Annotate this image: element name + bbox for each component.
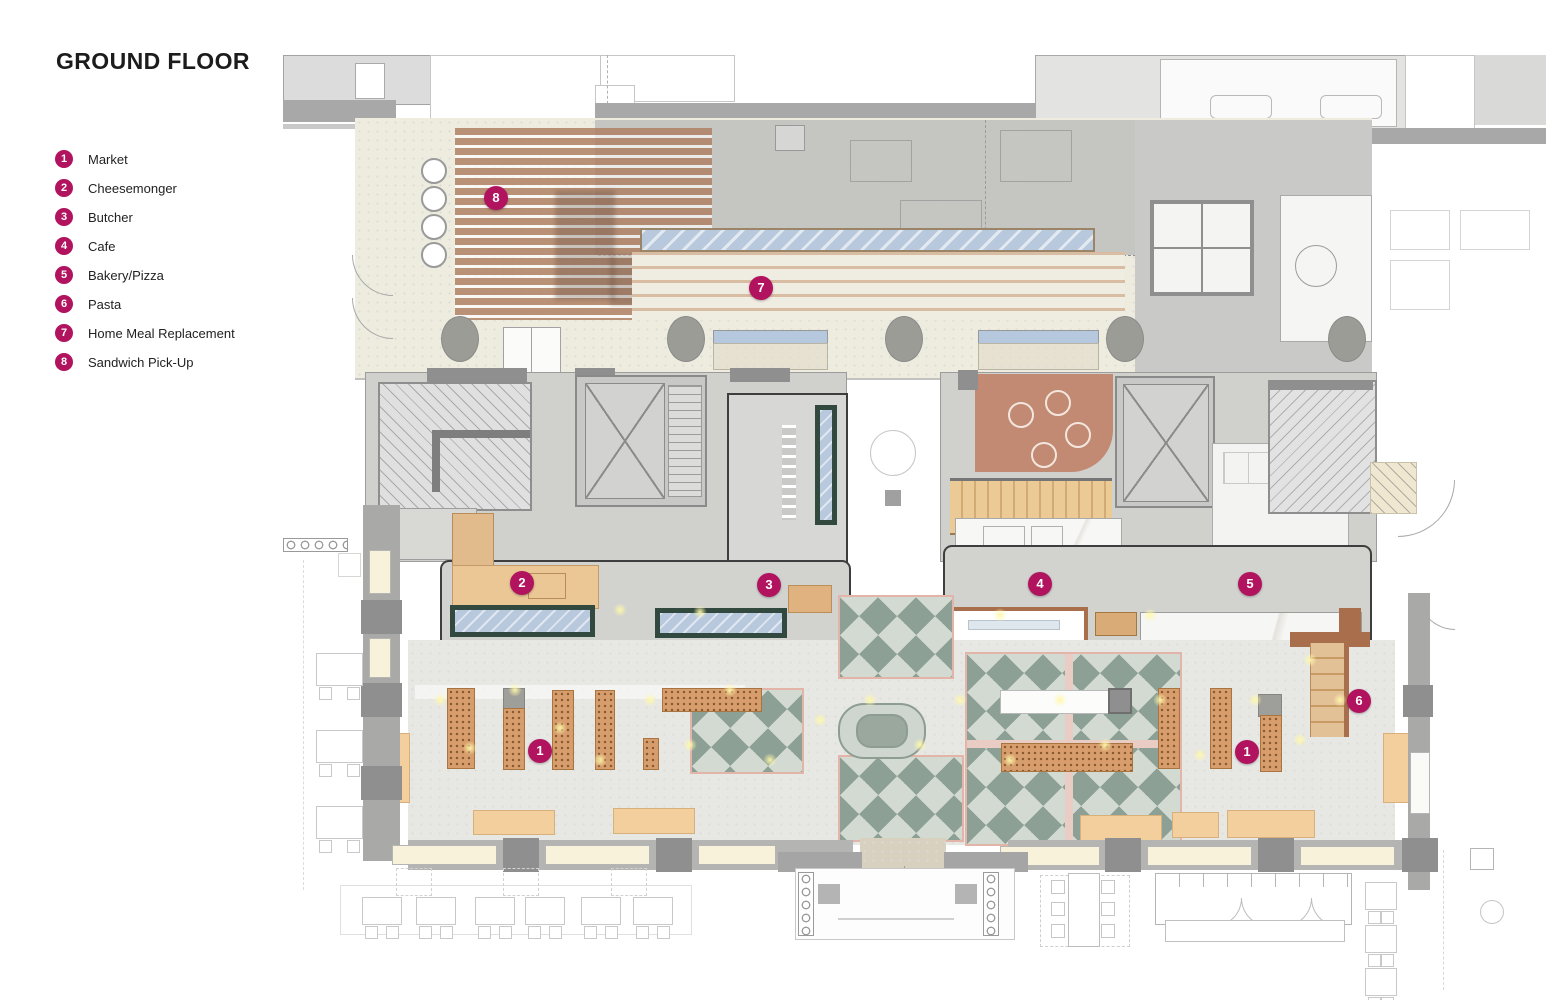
vestibule-railing xyxy=(838,918,954,920)
market-gondola xyxy=(1210,688,1232,769)
stair-east xyxy=(1268,380,1377,514)
wall-pilaster xyxy=(1258,838,1294,872)
sidewalk-table-partial xyxy=(338,553,361,577)
patio-table xyxy=(416,897,456,925)
sofa-outline xyxy=(1210,95,1272,119)
light-glow xyxy=(683,738,697,752)
aisle-chandelier-ring xyxy=(870,430,916,476)
legend-label: Market xyxy=(88,152,128,167)
vestibule-column xyxy=(818,884,840,904)
window-bay xyxy=(1300,846,1395,866)
wall-pilaster xyxy=(503,838,539,872)
light-glow xyxy=(1193,748,1207,762)
light-glow xyxy=(1303,653,1317,667)
wall-pilaster xyxy=(1402,838,1438,872)
patio-canopy-dashed xyxy=(396,868,432,896)
plan-marker-7: 7 xyxy=(749,276,773,300)
sidewalk-table xyxy=(316,653,363,686)
light-glow xyxy=(433,693,447,707)
market-gondola xyxy=(1260,715,1282,772)
sofa-outline xyxy=(1320,95,1382,119)
column xyxy=(667,316,705,362)
legend-badge-1: 1 xyxy=(55,150,73,168)
legend-badge-6: 6 xyxy=(55,295,73,313)
room-top-white-1 xyxy=(430,55,602,127)
plan-marker-5: 5 xyxy=(1238,572,1262,596)
column xyxy=(885,316,923,362)
vestibule-colonnade xyxy=(798,872,814,936)
legend-item-market: 1Market xyxy=(55,150,235,168)
legend-item-sandwich: 8Sandwich Pick-Up xyxy=(55,353,235,371)
context-dashed xyxy=(1443,850,1444,990)
column xyxy=(1106,316,1144,362)
door-arc xyxy=(1398,480,1455,537)
context-room-outline xyxy=(1390,260,1450,310)
light-glow xyxy=(1333,693,1347,707)
wall-pilaster xyxy=(656,838,692,872)
wall-pilaster xyxy=(361,766,402,800)
market-gondola-long xyxy=(1001,743,1133,772)
market-gondola xyxy=(503,708,525,770)
stair-east-cap xyxy=(1268,380,1373,390)
kitchen-equip-outline xyxy=(775,125,805,151)
window-bay xyxy=(698,845,776,865)
bench xyxy=(1383,733,1410,803)
legend-label: Butcher xyxy=(88,210,133,225)
light-glow xyxy=(813,713,827,727)
bench xyxy=(1172,812,1219,838)
market-gondola xyxy=(447,688,475,769)
legend-badge-2: 2 xyxy=(55,179,73,197)
legend-label: Sandwich Pick-Up xyxy=(88,355,194,370)
light-glow xyxy=(1293,733,1307,747)
plan-marker-8: 8 xyxy=(484,186,508,210)
butcher-corner-wood xyxy=(788,585,832,613)
ground-floor-sheet: GROUND FLOOR 1Market 2Cheesemonger 3Butc… xyxy=(0,0,1546,1000)
display-case-vertical xyxy=(815,405,837,525)
patio-table xyxy=(633,897,673,925)
core-cap-wall xyxy=(958,370,978,390)
wall-pilaster xyxy=(361,683,402,717)
display-case-butcher xyxy=(655,608,787,638)
communal-chair xyxy=(1101,902,1115,916)
entrance-path xyxy=(860,838,946,868)
plan-marker-4: 4 xyxy=(1028,572,1052,596)
cafe-table-round xyxy=(1045,390,1071,416)
legend-item-hmr: 7Home Meal Replacement xyxy=(55,324,235,342)
wood-bar xyxy=(1095,612,1137,636)
stair-west xyxy=(378,382,532,511)
light-glow xyxy=(508,683,522,697)
planter-box xyxy=(978,330,1099,344)
cheese-table-outline xyxy=(528,573,566,599)
communal-chair xyxy=(1051,902,1065,916)
legend-label: Home Meal Replacement xyxy=(88,326,235,341)
vestibule-column xyxy=(955,884,977,904)
kitchen-equip-outline xyxy=(850,140,912,182)
patio-table xyxy=(475,897,515,925)
cafe-counter-sink xyxy=(968,620,1060,630)
round-table-outline xyxy=(1295,245,1337,287)
wall-pilaster xyxy=(361,600,402,634)
cafe-table-round xyxy=(1065,422,1091,448)
light-glow xyxy=(763,753,777,767)
legend-badge-8: 8 xyxy=(55,353,73,371)
planter-pot xyxy=(421,242,447,268)
banquette-counter xyxy=(1165,920,1345,942)
kiosk-divider xyxy=(531,327,532,377)
elevator-shaft xyxy=(1123,384,1209,502)
planter-pot xyxy=(421,186,447,212)
sidewalk-table xyxy=(316,806,363,839)
patio-table xyxy=(1365,882,1397,910)
market-gondola-long xyxy=(662,688,762,712)
light-glow xyxy=(723,683,737,697)
aisle-column xyxy=(885,490,901,506)
legend-badge-7: 7 xyxy=(55,324,73,342)
planter-pot xyxy=(421,158,447,184)
butcher-room-slot xyxy=(782,425,796,520)
patio-canopy-dashed xyxy=(611,868,647,896)
context-room-outline xyxy=(1390,210,1450,250)
display-case-cheese xyxy=(450,605,595,637)
communal-chair xyxy=(1051,880,1065,894)
light-glow xyxy=(1248,693,1262,707)
legend-label: Bakery/Pizza xyxy=(88,268,164,283)
light-glow xyxy=(913,738,927,752)
colonnade-chain xyxy=(283,538,348,552)
window-bay xyxy=(1410,752,1430,814)
window-bay xyxy=(392,845,497,865)
vestibule xyxy=(795,868,1015,940)
legend-badge-3: 3 xyxy=(55,208,73,226)
patio-table xyxy=(525,897,565,925)
wall-pilaster xyxy=(1403,685,1433,717)
light-glow xyxy=(693,605,707,619)
legend-badge-4: 4 xyxy=(55,237,73,255)
light-glow xyxy=(1143,608,1157,622)
window-bay xyxy=(1147,846,1252,866)
light-glow xyxy=(463,741,477,755)
legend-item-pasta: 6Pasta xyxy=(55,295,235,313)
plan-marker-6: 6 xyxy=(1347,689,1371,713)
light-glow xyxy=(993,608,1007,622)
legend-badge-5: 5 xyxy=(55,266,73,284)
light-glow xyxy=(593,753,607,767)
legend-item-cheesemonger: 2Cheesemonger xyxy=(55,179,235,197)
window-bay xyxy=(369,550,391,594)
legend-item-bakery-pizza: 5Bakery/Pizza xyxy=(55,266,235,284)
window-bay xyxy=(369,638,391,678)
planter-box-gravel xyxy=(713,343,828,370)
plan-marker-2: 2 xyxy=(510,571,534,595)
light-glow xyxy=(1003,753,1017,767)
plan-marker-1-west: 1 xyxy=(528,739,552,763)
wall-pilaster xyxy=(1105,838,1141,872)
planter-pot xyxy=(421,214,447,240)
bench xyxy=(1227,810,1315,838)
service-bar-cap xyxy=(1108,688,1132,714)
tile-patch xyxy=(838,755,964,842)
patio-table xyxy=(1365,968,1397,996)
context-circle xyxy=(1480,900,1504,924)
light-glow xyxy=(953,693,967,707)
room-topleft-inner xyxy=(355,63,385,99)
context-equipment xyxy=(1470,848,1494,870)
planter-box xyxy=(713,330,828,344)
legend-label: Pasta xyxy=(88,297,121,312)
legend-item-butcher: 3Butcher xyxy=(55,208,235,226)
context-room-outline xyxy=(1460,210,1530,250)
legend-label: Cafe xyxy=(88,239,115,254)
kitchen-equip-outline xyxy=(1000,130,1072,182)
floor-plan: 8 7 2 3 4 5 6 1 1 xyxy=(283,40,1546,1000)
light-glow xyxy=(1098,738,1112,752)
legend-item-cafe: 4Cafe xyxy=(55,237,235,255)
plan-marker-1-east: 1 xyxy=(1235,740,1259,764)
deck-planting xyxy=(555,190,615,300)
planter-box-gravel xyxy=(978,343,1099,370)
communal-chair xyxy=(1051,924,1065,938)
room-top-corner-gray xyxy=(1475,55,1546,125)
patio-table xyxy=(581,897,621,925)
context-dashed xyxy=(303,560,304,890)
market-gondola xyxy=(643,738,659,770)
column xyxy=(441,316,479,362)
shaft-vent xyxy=(668,385,702,497)
window-bay xyxy=(545,845,650,865)
plan-marker-3: 3 xyxy=(757,573,781,597)
display-case-glass xyxy=(640,228,1095,252)
sidewalk-table xyxy=(316,730,363,763)
core-cap-wall xyxy=(730,368,790,382)
communal-chair xyxy=(1101,924,1115,938)
storage-rack-grid xyxy=(1150,200,1254,296)
legend: 1Market 2Cheesemonger 3Butcher 4Cafe 5Ba… xyxy=(55,150,235,382)
light-glow xyxy=(643,693,657,707)
cafe-table-round xyxy=(1031,442,1057,468)
cafe-table-round xyxy=(1008,402,1034,428)
light-glow xyxy=(613,603,627,617)
stair-west-wall xyxy=(440,430,530,438)
bench xyxy=(613,808,695,834)
stair-west-wall xyxy=(432,430,440,492)
light-glow xyxy=(1153,693,1167,707)
light-glow xyxy=(1053,693,1067,707)
patio-table xyxy=(362,897,402,925)
vestibule-colonnade xyxy=(983,872,999,936)
patio-canopy-dashed xyxy=(503,868,539,896)
page-title: GROUND FLOOR xyxy=(56,48,250,75)
patio-table xyxy=(1365,925,1397,953)
light-glow xyxy=(863,693,877,707)
light-glow xyxy=(553,721,567,735)
fountain-oval-inner xyxy=(856,714,908,748)
communal-table xyxy=(1068,873,1100,947)
bench xyxy=(473,810,555,835)
legend-label: Cheesemonger xyxy=(88,181,177,196)
hmr-counter-band xyxy=(632,252,1125,320)
elevator-shaft xyxy=(585,383,665,499)
tile-patch xyxy=(838,595,954,679)
banquette-ticks xyxy=(1155,873,1350,887)
column xyxy=(1328,316,1366,362)
communal-chair xyxy=(1101,880,1115,894)
